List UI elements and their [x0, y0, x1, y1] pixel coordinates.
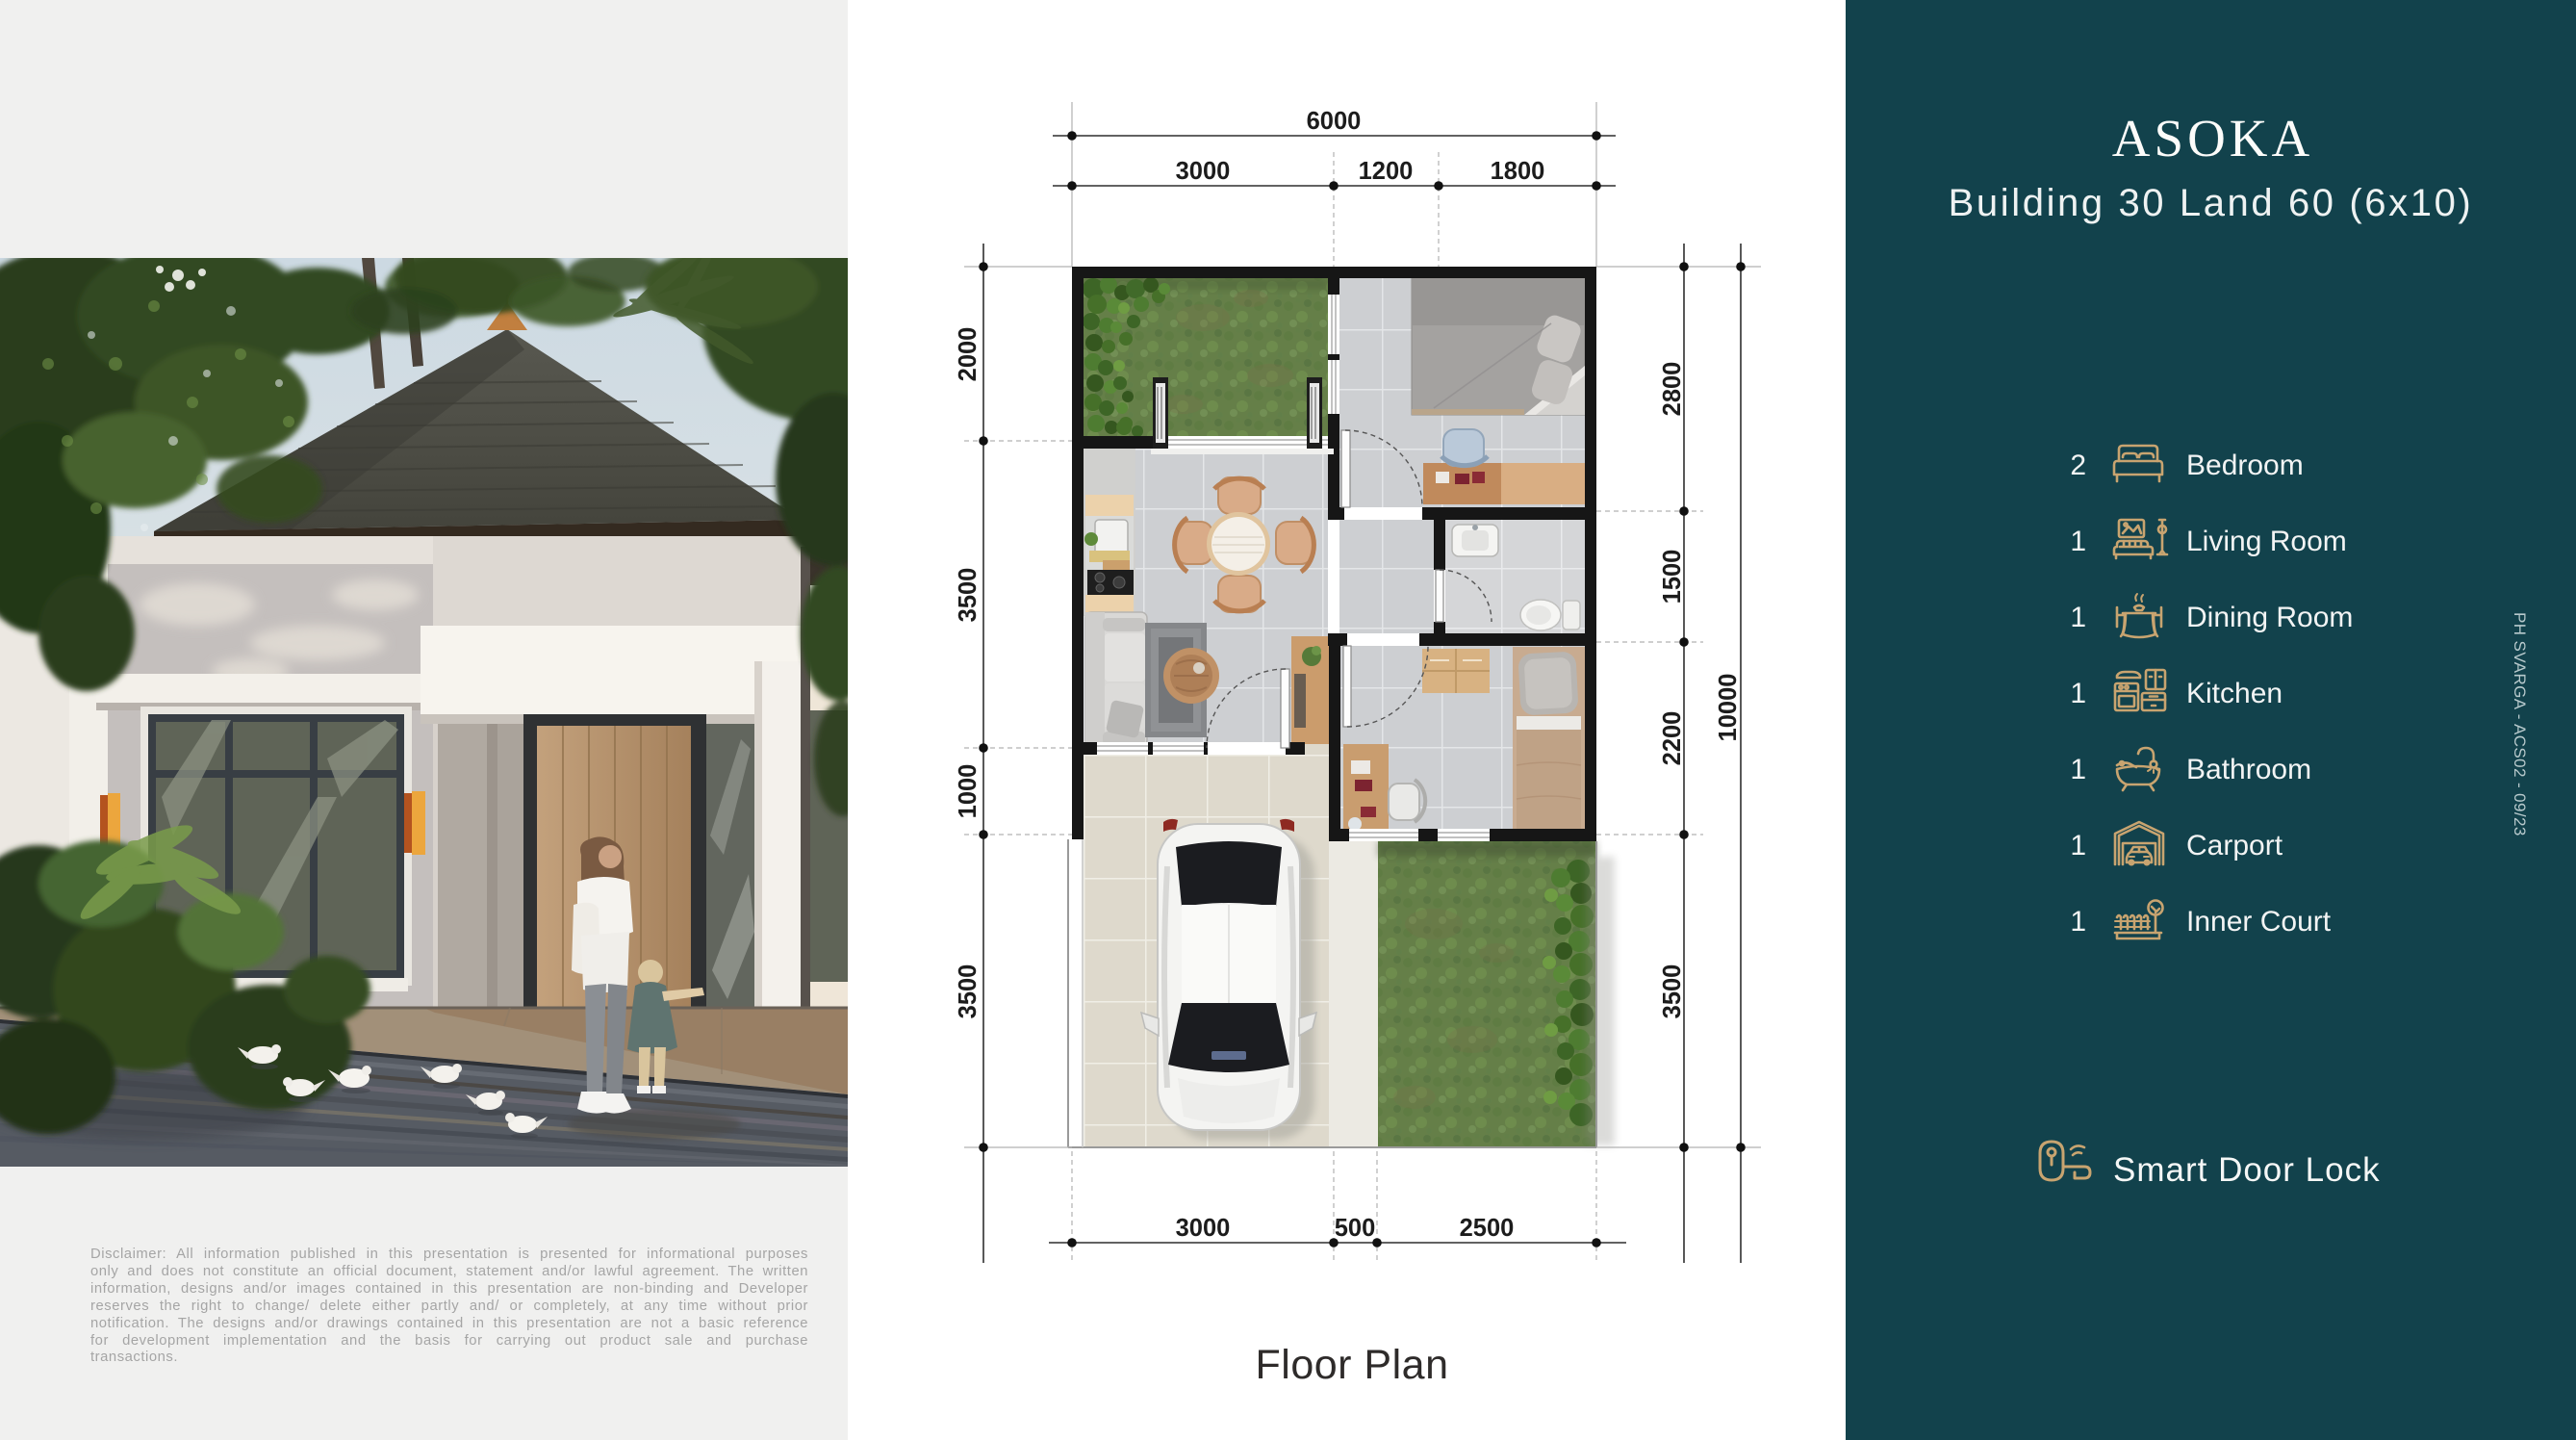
svg-text:Bathroom: Bathroom: [2186, 754, 2311, 785]
svg-text:Bedroom: Bedroom: [2186, 450, 2304, 481]
svg-text:1: 1: [2070, 678, 2086, 709]
svg-text:3500: 3500: [955, 964, 982, 1019]
svg-text:10000: 10000: [1715, 674, 1742, 742]
svg-text:Living Room: Living Room: [2186, 526, 2347, 557]
svg-text:Inner Court: Inner Court: [2186, 906, 2332, 938]
svg-text:2500: 2500: [1460, 1215, 1515, 1242]
svg-text:Carport: Carport: [2186, 830, 2283, 861]
svg-text:Dining Room: Dining Room: [2186, 602, 2353, 633]
svg-text:3000: 3000: [1176, 1215, 1231, 1242]
svg-text:1: 1: [2070, 754, 2086, 785]
svg-text:3500: 3500: [1659, 964, 1686, 1019]
svg-text:2800: 2800: [1659, 362, 1686, 417]
svg-text:500: 500: [1335, 1215, 1376, 1242]
svg-text:1: 1: [2070, 906, 2086, 938]
svg-text:6000: 6000: [1307, 108, 1362, 135]
svg-text:1: 1: [2070, 526, 2086, 557]
svg-text:3500: 3500: [955, 568, 982, 623]
svg-text:1800: 1800: [1491, 158, 1545, 185]
svg-text:1: 1: [2070, 602, 2086, 633]
svg-text:1000: 1000: [955, 764, 982, 819]
svg-text:Kitchen: Kitchen: [2186, 678, 2283, 709]
svg-text:3000: 3000: [1176, 158, 1231, 185]
svg-text:1500: 1500: [1659, 550, 1686, 604]
svg-text:2000: 2000: [955, 327, 982, 382]
svg-text:1: 1: [2070, 830, 2086, 861]
svg-text:2: 2: [2070, 450, 2086, 481]
svg-text:2200: 2200: [1659, 711, 1686, 766]
svg-text:1200: 1200: [1359, 158, 1414, 185]
